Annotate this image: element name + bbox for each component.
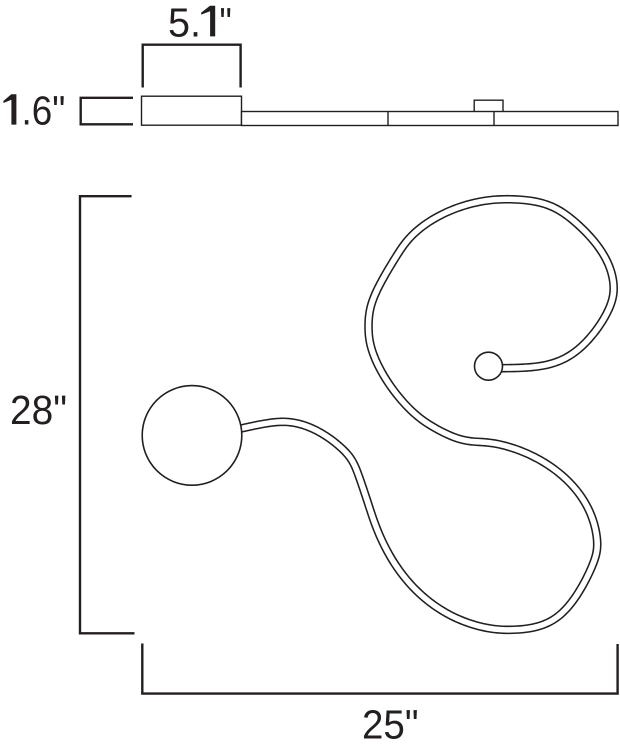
svg-text:25": 25" [362, 702, 419, 748]
svg-text:28": 28" [10, 387, 67, 433]
svg-text:5.: 5. [168, 0, 201, 45]
svg-text:": " [220, 0, 232, 45]
svg-text:.6": .6" [22, 88, 66, 134]
